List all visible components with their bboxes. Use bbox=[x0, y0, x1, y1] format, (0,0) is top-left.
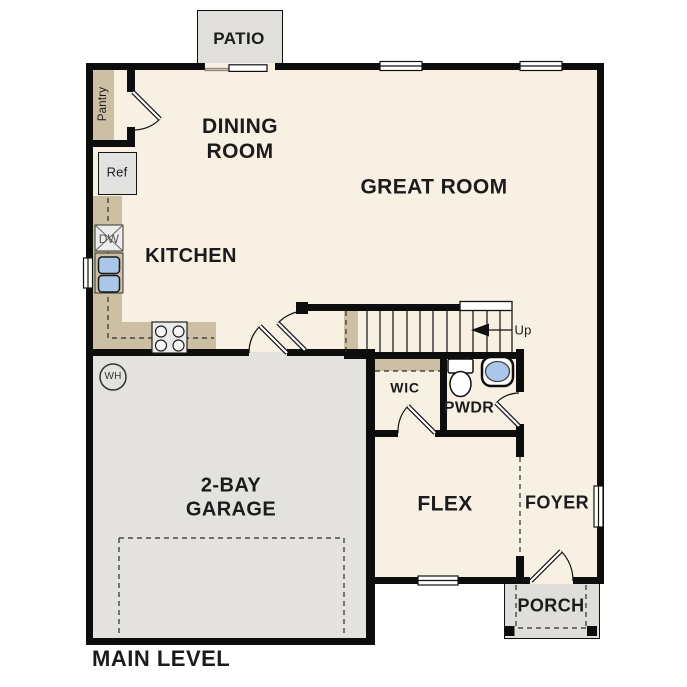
flex-label: FLEX bbox=[417, 493, 472, 518]
stair-treads bbox=[367, 311, 512, 352]
great-room-window bbox=[380, 62, 422, 71]
refrigerator-label: Ref bbox=[107, 164, 128, 179]
hall-door bbox=[278, 311, 305, 350]
dining-room-label: DINING ROOM bbox=[202, 115, 278, 165]
kitchen-sink bbox=[95, 253, 123, 293]
garage-door-clearance-dash bbox=[119, 538, 344, 636]
stairs bbox=[367, 302, 512, 353]
front-door bbox=[531, 551, 573, 581]
patio-slider-door bbox=[205, 65, 267, 72]
kitchen-sink-window bbox=[84, 258, 93, 288]
foyer-window bbox=[594, 486, 603, 527]
toilet bbox=[448, 359, 473, 397]
foyer-label: FOYER bbox=[525, 492, 589, 513]
powder-room-label: PWDR bbox=[444, 400, 494, 419]
garage-entry-door bbox=[249, 326, 287, 353]
floor-plan: PATIO DINING ROOM GREAT ROOM KITCHEN 2-B… bbox=[0, 0, 687, 687]
pantry-door bbox=[133, 92, 160, 130]
up-arrow-head bbox=[471, 324, 489, 337]
kitchen-label: KITCHEN bbox=[145, 245, 237, 269]
pantry-label: Pantry bbox=[97, 87, 111, 121]
flex-window bbox=[418, 576, 458, 585]
porch-label: PORCH bbox=[517, 595, 584, 616]
stair-railing bbox=[460, 302, 512, 311]
water-heater-label: WH bbox=[104, 371, 121, 383]
stairs-up-label: Up bbox=[514, 322, 531, 337]
patio-label: PATIO bbox=[213, 29, 264, 49]
great-room-window bbox=[520, 62, 562, 71]
garage-label: 2-BAY GARAGE bbox=[186, 474, 276, 521]
plan-title: MAIN LEVEL bbox=[92, 646, 230, 672]
powder-sink bbox=[482, 357, 513, 386]
wic-label: WIC bbox=[390, 380, 420, 397]
dishwasher-label: DW bbox=[99, 232, 119, 246]
powder-door bbox=[496, 393, 519, 426]
wic-door bbox=[398, 406, 435, 433]
stove bbox=[152, 322, 187, 353]
great-room-label: GREAT ROOM bbox=[360, 176, 507, 201]
